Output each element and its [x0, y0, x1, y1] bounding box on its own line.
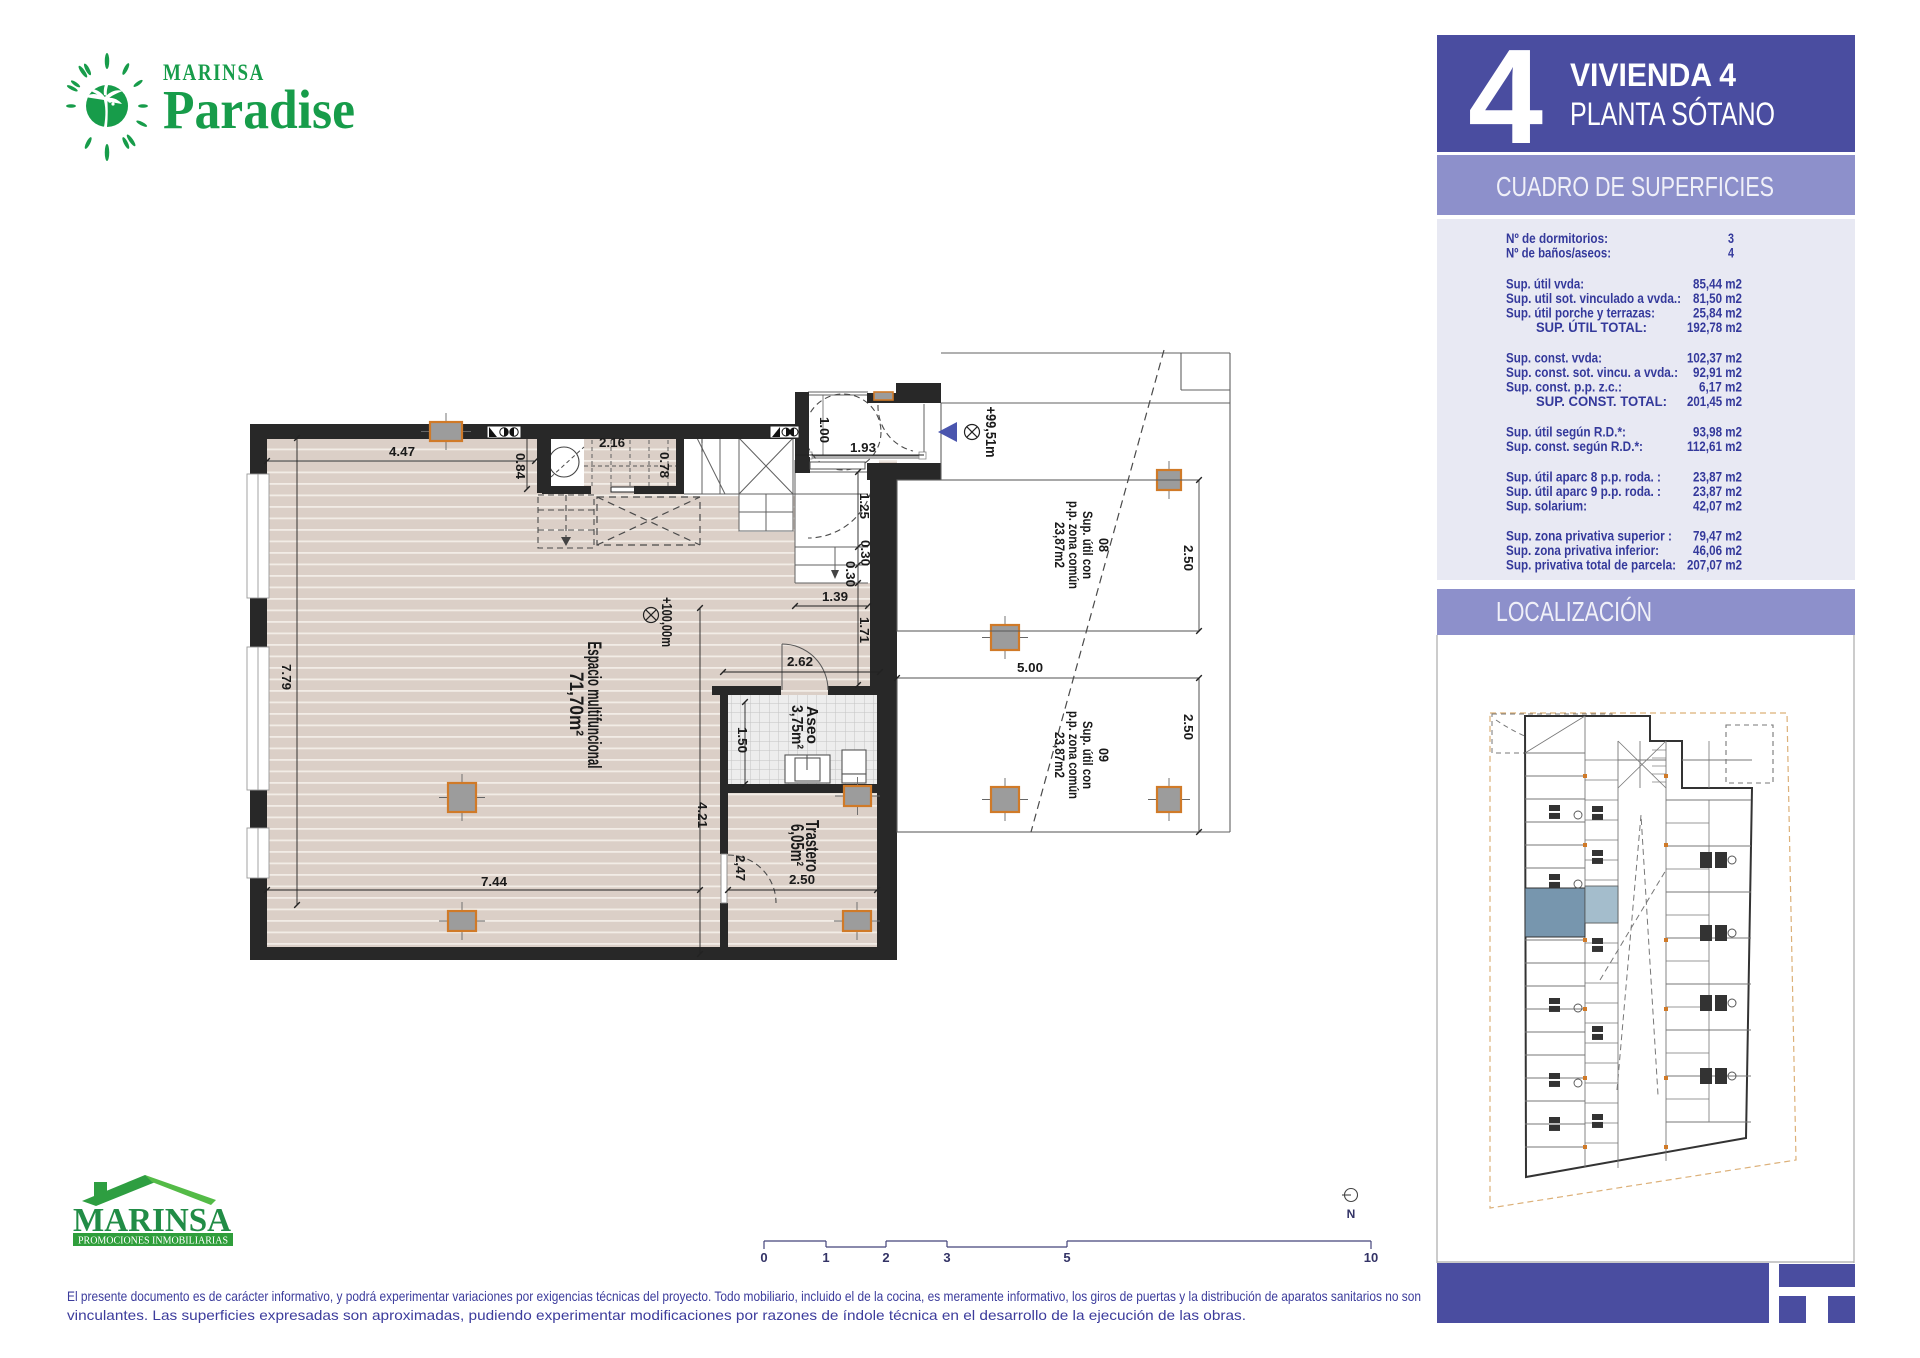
svg-text:4: 4: [1728, 245, 1734, 261]
svg-text:08: 08: [1096, 538, 1112, 552]
svg-text:5: 5: [1063, 1250, 1070, 1265]
svg-text:2.50: 2.50: [1181, 714, 1196, 740]
svg-text:VIVIENDA 4: VIVIENDA 4: [1570, 57, 1736, 93]
svg-text:0.78: 0.78: [657, 452, 672, 478]
svg-text:2.50: 2.50: [789, 872, 815, 887]
svg-text:2.50: 2.50: [1181, 545, 1196, 571]
svg-text:71,70m²: 71,70m²: [565, 672, 586, 736]
svg-text:CUADRO DE SUPERFICIES: CUADRO DE SUPERFICIES: [1496, 171, 1774, 202]
svg-text:5.00: 5.00: [1017, 660, 1043, 675]
svg-text:+100,00m: +100,00m: [658, 597, 675, 647]
svg-text:Paradise: Paradise: [163, 79, 355, 140]
svg-text:207,07 m2: 207,07 m2: [1687, 557, 1742, 573]
svg-text:201,45 m2: 201,45 m2: [1687, 393, 1742, 409]
svg-text:1.71: 1.71: [857, 617, 872, 643]
svg-text:vinculantes. Las superficies e: vinculantes. Las superficies expresadas …: [67, 1307, 1246, 1323]
svg-text:4: 4: [1468, 21, 1543, 172]
svg-text:SUP. CONST. TOTAL:: SUP. CONST. TOTAL:: [1536, 393, 1667, 409]
svg-text:PLANTA SÓTANO: PLANTA SÓTANO: [1570, 96, 1775, 132]
svg-text:Sup. const. según R.D.*:: Sup. const. según R.D.*:: [1506, 438, 1643, 454]
svg-text:0: 0: [760, 1250, 767, 1265]
svg-text:0.30: 0.30: [843, 561, 858, 587]
svg-text:2,47: 2,47: [733, 855, 748, 881]
svg-text:Sup. solarium:: Sup. solarium:: [1506, 498, 1587, 514]
svg-text:4.21: 4.21: [695, 802, 710, 828]
svg-text:10: 10: [1364, 1250, 1378, 1265]
svg-text:192,78 m2: 192,78 m2: [1687, 319, 1742, 335]
svg-text:3,75m²: 3,75m²: [788, 705, 805, 749]
svg-text:+99,51m: +99,51m: [982, 407, 999, 458]
svg-text:23,87m2: 23,87m2: [1052, 522, 1068, 568]
svg-text:1.00: 1.00: [817, 417, 832, 443]
svg-text:23,87m2: 23,87m2: [1052, 732, 1068, 778]
svg-text:0.30: 0.30: [858, 540, 873, 566]
svg-text:Nº de baños/aseos:: Nº de baños/aseos:: [1506, 245, 1611, 261]
svg-text:112,61 m2: 112,61 m2: [1687, 438, 1742, 454]
svg-text:1.93: 1.93: [850, 440, 876, 455]
svg-text:7.79: 7.79: [279, 664, 294, 690]
svg-text:0.84: 0.84: [513, 453, 528, 480]
svg-text:N: N: [1347, 1207, 1356, 1221]
svg-text:09: 09: [1096, 748, 1112, 762]
svg-text:6,05m²: 6,05m²: [787, 824, 807, 866]
svg-text:2: 2: [882, 1250, 889, 1265]
svg-text:1.39: 1.39: [822, 589, 848, 604]
svg-text:Sup. privativa total de parcel: Sup. privativa total de parcela:: [1506, 557, 1676, 573]
svg-text:4.47: 4.47: [389, 444, 415, 459]
svg-text:LOCALIZACIÓN: LOCALIZACIÓN: [1496, 596, 1652, 627]
svg-text:El presente documento es de ca: El presente documento es de carácter inf…: [67, 1288, 1421, 1304]
svg-text:7.44: 7.44: [481, 874, 508, 889]
svg-text:PROMOCIONES INMOBILIARIAS: PROMOCIONES INMOBILIARIAS: [78, 1236, 228, 1247]
svg-text:3: 3: [943, 1250, 950, 1265]
svg-text:2.62: 2.62: [787, 654, 813, 669]
svg-text:2.16: 2.16: [599, 435, 625, 450]
svg-text:1.50: 1.50: [735, 727, 750, 753]
svg-text:42,07 m2: 42,07 m2: [1693, 498, 1742, 514]
svg-text:1: 1: [822, 1250, 829, 1265]
svg-text:1.25: 1.25: [857, 493, 872, 519]
svg-text:SUP. ÚTIL TOTAL:: SUP. ÚTIL TOTAL:: [1536, 318, 1647, 335]
